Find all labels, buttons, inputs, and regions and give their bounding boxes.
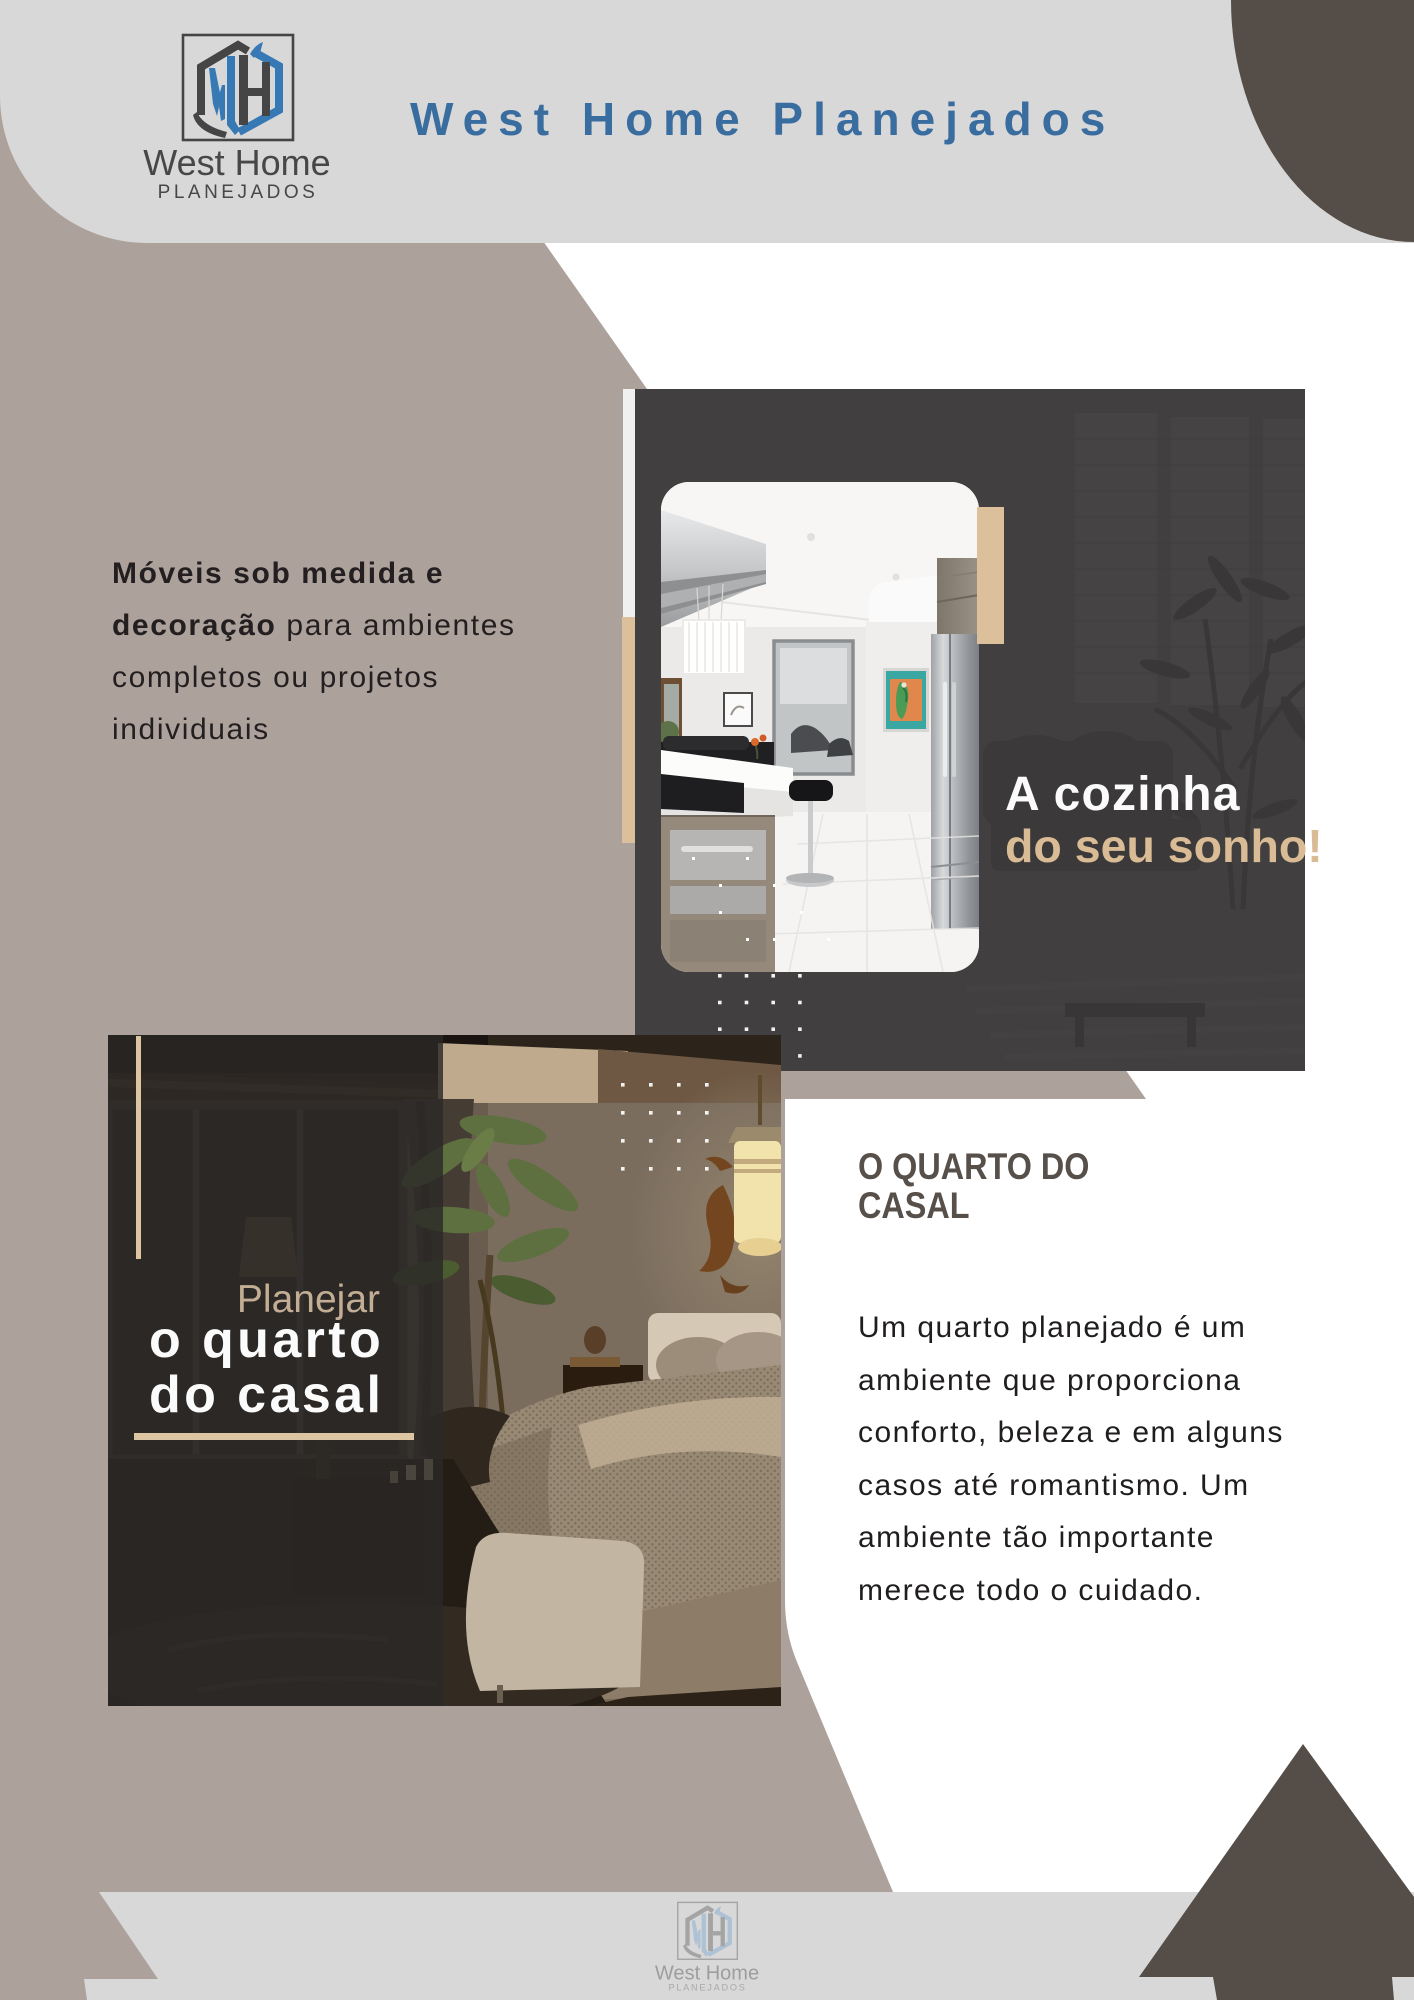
svg-text:PLANEJADOS: PLANEJADOS bbox=[668, 1983, 746, 1993]
svg-text:West Home: West Home bbox=[655, 1962, 759, 1984]
svg-text:PLANEJADOS: PLANEJADOS bbox=[158, 182, 319, 203]
svg-text:West Home: West Home bbox=[143, 142, 330, 183]
